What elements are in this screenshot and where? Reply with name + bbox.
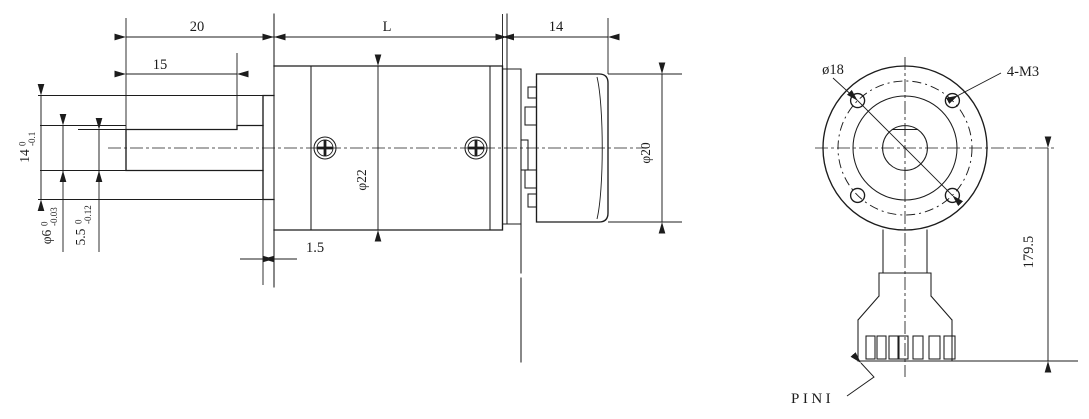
phillips-screw-icon — [314, 137, 336, 159]
dim-label-lead-length: 179.5 — [1021, 236, 1037, 269]
svg-text:-0.1: -0.1 — [27, 132, 37, 146]
pilot-boss-outline — [263, 96, 274, 200]
svg-text:0: 0 — [74, 219, 84, 224]
svg-text:-0.12: -0.12 — [83, 205, 93, 224]
pin-label: PINI — [791, 391, 834, 407]
front-view: ø18 4-M3 179.5 PINI — [791, 57, 1078, 407]
svg-text:179.5: 179.5 — [1021, 236, 1037, 269]
svg-text:φ6: φ6 — [39, 229, 54, 244]
extension-lines — [38, 18, 682, 285]
gearbox-body-outline — [274, 14, 503, 230]
dim-label-motor-dia: φ20 — [638, 142, 653, 164]
dim-label-flat-length: 15 — [153, 57, 168, 73]
dim-label-shaft-length: 20 — [190, 19, 205, 35]
dim-label-plate-thickness: 1.5 — [306, 240, 324, 256]
svg-text:φ20: φ20 — [638, 142, 653, 164]
dim-label-bolt-circle: ø18 — [822, 62, 844, 78]
connector-pins — [866, 336, 955, 359]
dim-label-gearbox-dia: φ22 — [354, 169, 369, 190]
dim-label-mounting-holes: 4-M3 — [1007, 64, 1039, 80]
bolt-circle-dimension — [833, 78, 952, 195]
svg-text:-0.03: -0.03 — [49, 207, 59, 226]
dim-label-boss-dia: 14 0 -0.1 — [17, 132, 37, 163]
dim-label-shaft-flat: 5.5 0 -0.12 — [73, 205, 93, 245]
dim-label-motor-length: 14 — [549, 19, 564, 35]
dim-label-shaft-dia: φ6 0 -0.03 — [39, 207, 59, 245]
motor-mount-tabs — [521, 87, 537, 207]
side-view: 20 15 L 14 1.5 φ22 φ20 14 0 -0.1 φ6 0 -0… — [17, 14, 682, 362]
phillips-screw-icon — [465, 137, 487, 159]
svg-text:5.5: 5.5 — [73, 228, 88, 245]
technical-drawing-page: 20 15 L 14 1.5 φ22 φ20 14 0 -0.1 φ6 0 -0… — [0, 0, 1089, 419]
svg-text:0: 0 — [40, 221, 50, 226]
pin-label-leader — [847, 363, 874, 396]
dim-label-body-length: L — [383, 19, 392, 35]
mounting-holes-leader — [958, 73, 1001, 96]
svg-text:14: 14 — [17, 149, 32, 163]
motor-adapter-plate — [503, 14, 522, 362]
svg-text:0: 0 — [18, 141, 28, 146]
svg-text:φ22: φ22 — [354, 169, 369, 190]
gear-motor-drawing: 20 15 L 14 1.5 φ22 φ20 14 0 -0.1 φ6 0 -0… — [0, 0, 1089, 419]
